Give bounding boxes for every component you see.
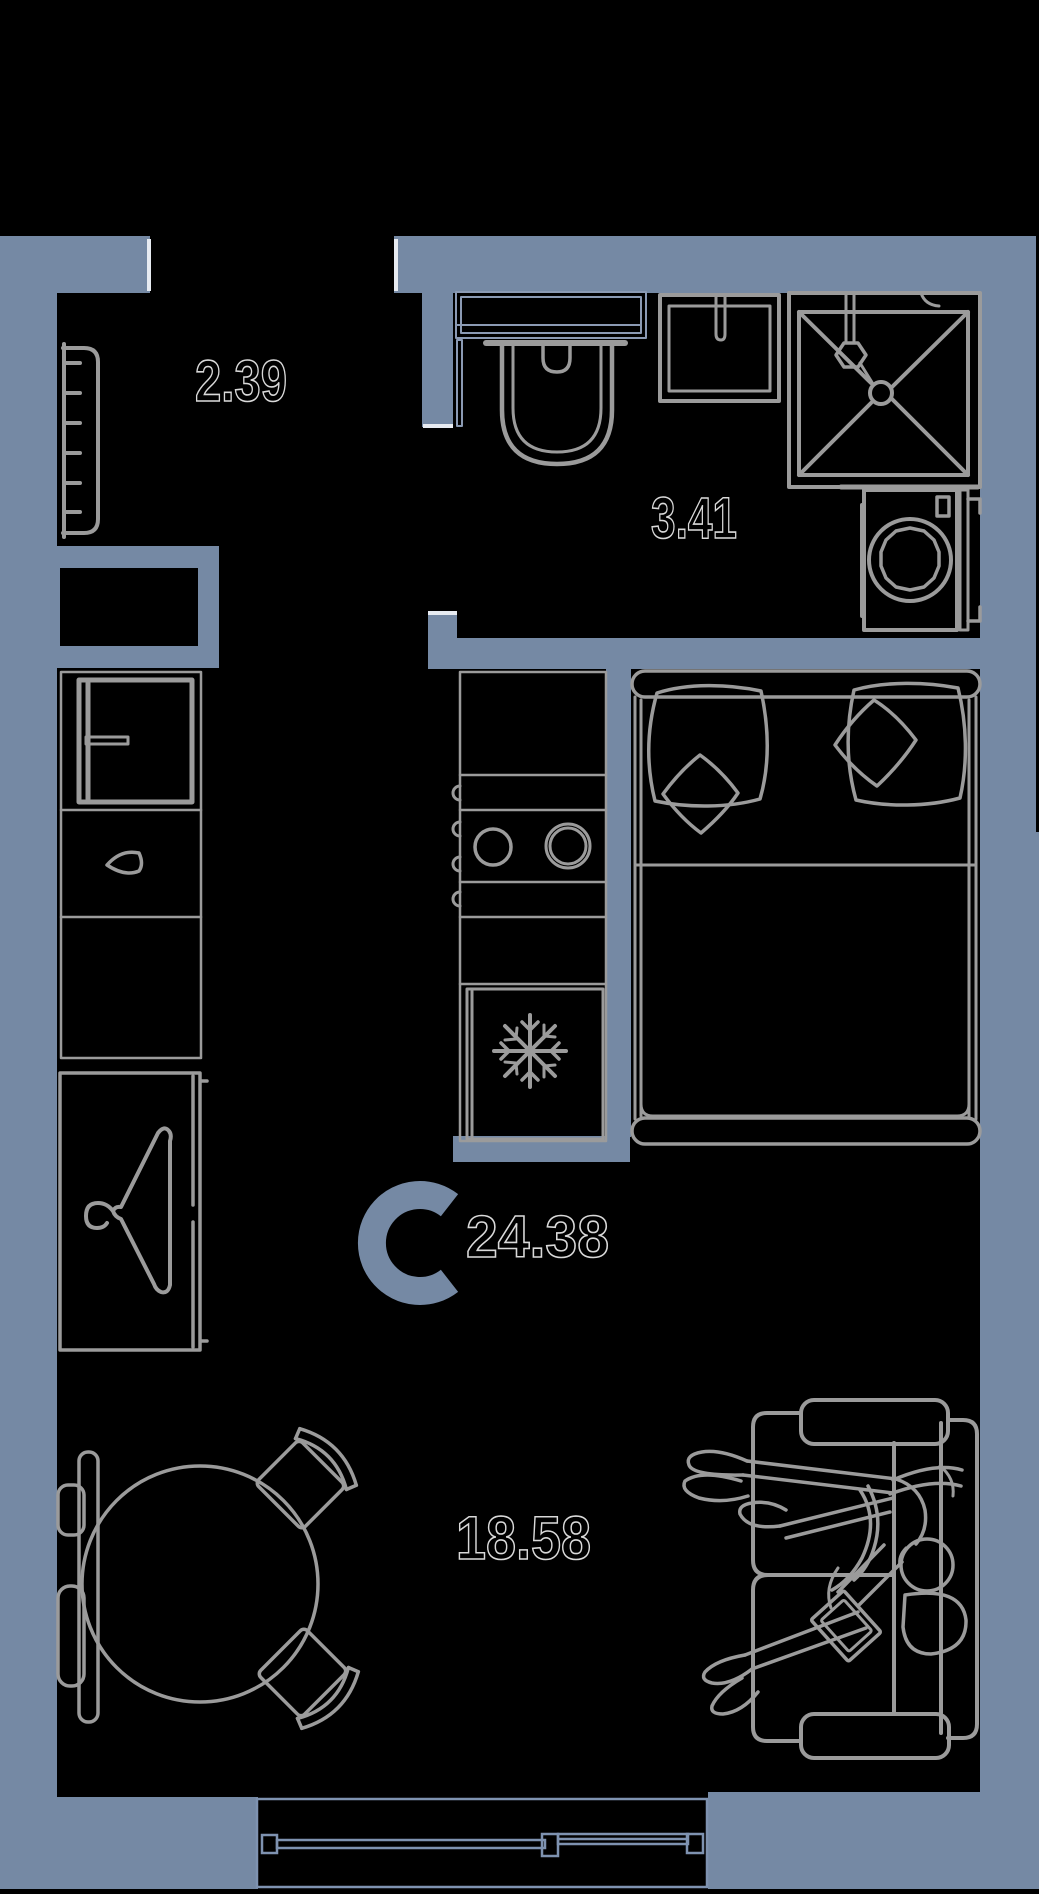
svg-text:18.58: 18.58 <box>456 1504 591 1572</box>
svg-text:24.38: 24.38 <box>466 1204 609 1270</box>
svg-text:2.39: 2.39 <box>195 349 287 414</box>
svg-text:3.41: 3.41 <box>651 486 737 551</box>
